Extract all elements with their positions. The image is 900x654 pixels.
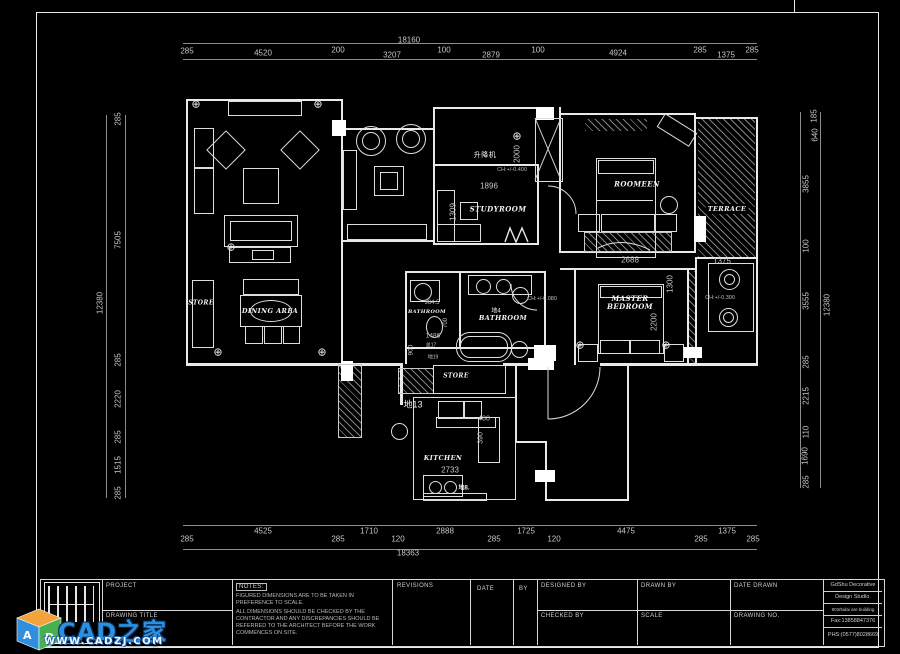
dim-label: 100	[437, 46, 450, 55]
dim-label: 3555	[802, 292, 811, 310]
dim-label: 285	[802, 355, 811, 368]
plan-dim: 700	[443, 318, 449, 328]
window-sill	[228, 101, 302, 116]
room-label-dining: DINING AREA	[242, 307, 298, 315]
dim-label: 12380	[823, 294, 832, 316]
dim-label: 285	[331, 535, 344, 544]
wardrobe-hatch	[688, 271, 695, 364]
level-note: CH:+/-0.300	[705, 295, 735, 301]
dim-label: 3207	[383, 51, 401, 60]
entrance-door-arc	[548, 367, 600, 419]
dim-label: 18160	[398, 36, 420, 45]
wall	[405, 271, 546, 273]
dim-line-left	[125, 115, 126, 498]
dim-label: 285	[746, 535, 759, 544]
dim-label: 4520	[254, 49, 272, 58]
sink	[496, 279, 511, 294]
bed-headboard	[598, 160, 654, 174]
dim-label: 1515	[114, 456, 123, 474]
firm-fax-line: Fax:13858847376	[824, 616, 882, 628]
dim-label: 1725	[517, 527, 535, 536]
stool	[660, 196, 678, 214]
dim-label: 640	[811, 128, 820, 141]
drawing-no-label: DRAWING NO.	[734, 613, 780, 619]
dim-line-top-total	[183, 43, 757, 44]
target-symbol: ⊕	[226, 242, 235, 253]
dim-label: 285	[180, 47, 193, 56]
watermark-site-url: WWW.CADZJ.COM	[44, 636, 164, 647]
dim-label: 4924	[609, 49, 627, 58]
terrace-hatch	[698, 119, 755, 257]
sink	[476, 279, 491, 294]
bed-line	[597, 200, 653, 201]
plan-dim: 984.5	[424, 300, 439, 306]
tag-note: 地19	[428, 354, 439, 361]
sheet-border-right	[878, 12, 879, 648]
level-note: CH:+/-0.080	[527, 296, 557, 302]
dim-label: 2220	[114, 390, 123, 408]
dim-label: 285	[114, 430, 123, 443]
sheet-top-tick	[794, 0, 795, 13]
washer-inner	[724, 274, 735, 285]
dim-line-left-total	[106, 115, 107, 498]
wall	[433, 107, 539, 109]
title-block-divider	[102, 610, 232, 611]
elevator-shaft	[535, 118, 563, 182]
cad-drawing-sheet: 18160 285 4520 200 3207 100 2879 100 492…	[0, 0, 900, 654]
notes-text: ALL DIMENSIONS SHOULD BE CHECKED BY THE …	[236, 609, 388, 637]
drawn-by-label: DRAWN BY	[641, 583, 676, 589]
wall	[756, 117, 758, 365]
firm-logo-icon	[48, 604, 94, 605]
dim-label: 3855	[802, 175, 811, 193]
title-block-divider	[470, 579, 471, 645]
room-label-bathroom: BATHROOM	[479, 314, 527, 322]
dresser	[657, 113, 698, 147]
notes-text: FIGURED DIMENSIONS ARE TO BE TAKEN IN PR…	[236, 593, 388, 607]
dim-label: 4525	[254, 527, 272, 536]
dim-label: 100	[802, 239, 811, 252]
plan-dim: 1896	[480, 182, 498, 191]
designed-by-label: DESIGNED BY	[541, 583, 586, 589]
washer-inner	[723, 312, 734, 323]
dim-line-right-total	[820, 112, 821, 488]
room-label-store: STORE	[443, 373, 469, 380]
coffee-table	[243, 168, 279, 204]
bathtub-inner	[460, 336, 508, 358]
sideboard	[243, 279, 299, 295]
wall	[627, 363, 629, 501]
by-label: BY	[519, 586, 528, 592]
target-symbol: ⊕	[191, 99, 200, 110]
target-symbol: ⊕	[317, 347, 326, 358]
firm-phone-line: PHS:(0577)8028669	[824, 628, 882, 642]
dim-label: 285	[745, 46, 758, 55]
dim-line-bottom-total	[183, 549, 757, 550]
wall	[186, 99, 188, 365]
sheet-border-left	[36, 12, 37, 648]
cube-letter-a: A	[23, 629, 32, 642]
dim-line-top	[183, 59, 757, 60]
room-label-store: STORE	[188, 300, 214, 307]
plan-dim: 1375	[713, 257, 731, 266]
cabinet	[347, 224, 427, 240]
title-block-divider	[537, 610, 823, 611]
dim-label: 1710	[360, 527, 378, 536]
plan-dim: 1486	[426, 333, 440, 340]
dim-label: 185	[810, 109, 819, 122]
project-label: PROJECT	[106, 583, 137, 589]
title-block-divider	[392, 579, 393, 645]
sheet-border-bottom	[36, 647, 879, 648]
bed-foot-cabinet	[600, 340, 630, 354]
room-label-master-bedroom: MASTER BEDROOM	[602, 295, 658, 311]
wall	[560, 268, 696, 270]
desk-return	[437, 224, 481, 242]
tag-note: 地4	[491, 306, 500, 315]
dim-label: 285	[693, 46, 706, 55]
dim-label: 4475	[617, 527, 635, 536]
dim-label: 285	[802, 475, 811, 488]
plan-dim: 480	[478, 416, 490, 423]
room-label-study: STUDYROOM	[470, 205, 527, 214]
dining-chair	[264, 326, 282, 344]
cabinet	[343, 150, 357, 210]
target-symbol: ⊕	[575, 340, 584, 351]
cabinet	[194, 168, 214, 214]
stair-zigzag-icon	[505, 228, 528, 242]
door-arc	[548, 186, 576, 214]
wall	[560, 113, 696, 115]
title-block-divider	[513, 579, 514, 645]
room-label-bedroom2: ROOMEEN	[614, 180, 660, 189]
column-fill	[528, 358, 554, 370]
wall	[341, 240, 434, 242]
dim-label: 7505	[114, 231, 123, 249]
cabinet	[601, 214, 655, 232]
plan-dim: 900	[408, 345, 415, 356]
wall	[600, 363, 758, 366]
round-table	[391, 423, 408, 440]
target-symbol: ⊕	[313, 99, 322, 110]
dim-label: 12380	[96, 292, 105, 314]
wall	[186, 363, 403, 366]
room-label-elevator: 升降机	[474, 150, 496, 160]
firm-name-line: Design Studio.	[824, 592, 882, 604]
wall	[433, 107, 435, 130]
dining-chair	[245, 326, 263, 344]
dim-label: 100	[531, 46, 544, 55]
plan-dim: 2733	[441, 466, 459, 475]
tv	[252, 250, 274, 260]
dim-label: 200	[331, 46, 344, 55]
dim-label: 2879	[482, 51, 500, 60]
room-label-bathroom: BATHROOM	[408, 309, 446, 315]
dim-label: 285	[114, 486, 123, 499]
dim-label: 285	[487, 535, 500, 544]
plan-dim: 2000	[513, 145, 522, 163]
dim-label: 2215	[802, 387, 811, 405]
sheet-border-top	[36, 12, 879, 13]
wall	[433, 128, 435, 245]
title-block-divider	[537, 579, 538, 645]
dim-label: 1690	[801, 447, 810, 465]
dim-label: 1375	[717, 51, 735, 60]
store-cabinet	[192, 280, 214, 348]
sink	[414, 283, 432, 301]
window-hatch	[585, 119, 647, 131]
dim-label: 110	[802, 426, 811, 439]
plan-dim: 1309	[449, 203, 458, 221]
table-inner	[380, 172, 398, 190]
dim-label: 120	[391, 535, 404, 544]
room-label-terrace: TERRACE	[706, 204, 749, 214]
room-label-kitchen: KITCHEN	[424, 454, 463, 462]
column-fill	[535, 470, 555, 482]
tag-note: 地13	[403, 398, 422, 411]
balcony-hatch	[338, 364, 362, 438]
wall	[545, 499, 629, 501]
date-drawn-label: DATE DRAWN	[734, 583, 778, 589]
nightstand	[655, 214, 677, 232]
notes-label: NOTES:	[236, 583, 267, 591]
bed-foot-cabinet	[630, 340, 660, 354]
revisions-label: REVISIONS	[397, 583, 433, 589]
dim-label: 285	[114, 112, 123, 125]
plan-dim: 1300	[666, 275, 675, 293]
dim-label: 2888	[436, 527, 454, 536]
cabinet-hatch	[398, 368, 434, 394]
wall	[341, 240, 343, 364]
plan-dim: 2688	[621, 256, 639, 265]
plan-dim: 2200	[650, 313, 659, 331]
firm-address-line: 903/5idai are building	[824, 604, 882, 616]
plan-dim: 390	[478, 432, 485, 444]
dining-chair	[283, 326, 300, 344]
wall	[433, 164, 538, 166]
wall	[433, 243, 539, 245]
tag-note: 地8.	[458, 483, 469, 492]
round-chair-inner	[402, 130, 420, 148]
dim-label: 120	[547, 535, 560, 544]
nightstand	[578, 214, 600, 232]
target-symbol: ⊕	[213, 347, 222, 358]
firm-name-line: GdShu Decorative	[824, 580, 882, 592]
scale-label: SCALE	[641, 613, 663, 619]
firm-info: GdShu Decorative Design Studio. 903/5ida…	[824, 580, 882, 644]
dim-label: 1375	[718, 527, 736, 536]
toilet	[511, 341, 528, 358]
dim-label: 18363	[397, 549, 419, 558]
dim-label: 285	[114, 353, 123, 366]
wall	[515, 441, 547, 443]
store-room	[433, 365, 506, 394]
checked-by-label: CHECKED BY	[541, 613, 584, 619]
date-label: DATE	[477, 586, 494, 592]
level-note: CH:+/-0.400	[497, 167, 527, 173]
plan-curves	[0, 0, 900, 654]
title-block-divider	[232, 579, 233, 645]
title-block-divider	[730, 579, 731, 645]
round-chair-inner	[362, 132, 380, 150]
title-block-divider	[637, 579, 638, 645]
target-symbol: ⊕	[661, 340, 670, 351]
column-fill	[332, 120, 346, 136]
sofa-seat	[230, 221, 292, 241]
dim-label: 285	[694, 535, 707, 544]
target-symbol: ⊕	[512, 131, 521, 142]
armchair	[280, 130, 320, 170]
tag-note: 总17	[426, 342, 437, 349]
dim-label: 285	[180, 535, 193, 544]
kitchen-window	[423, 493, 487, 501]
